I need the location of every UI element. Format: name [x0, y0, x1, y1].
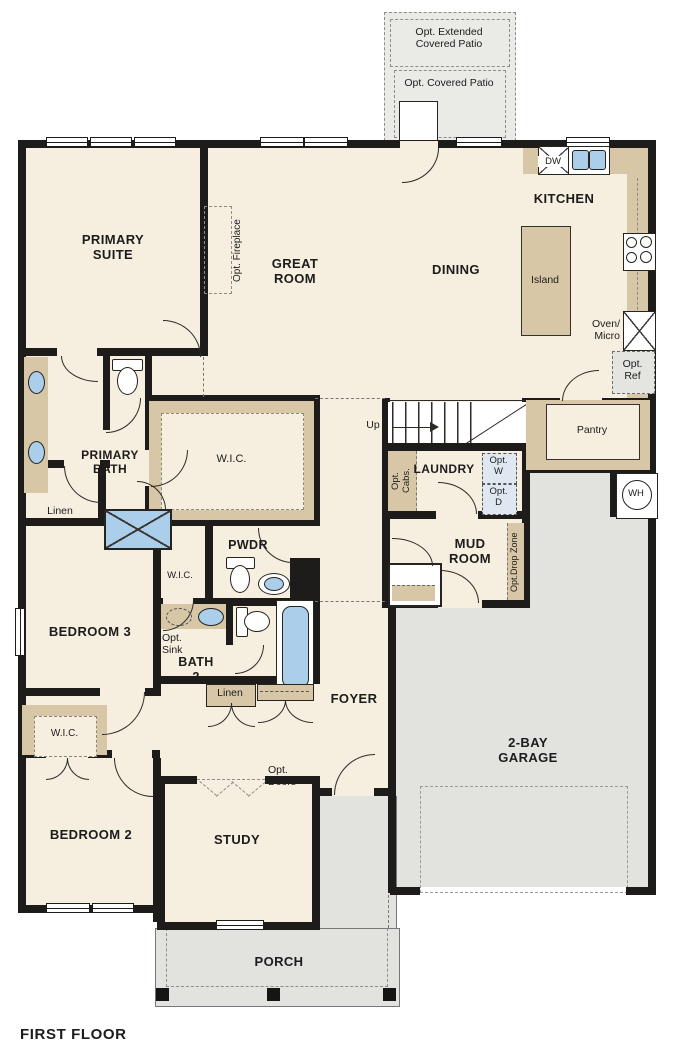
window — [46, 137, 88, 147]
drop-zone-label: Opt.Drop Zone — [509, 524, 520, 600]
porch-label: PORCH — [246, 954, 312, 969]
up-label: Up — [362, 419, 384, 431]
window — [90, 137, 132, 147]
dashed-wall-line — [203, 357, 204, 397]
vanity-sink — [28, 371, 45, 394]
wall — [18, 140, 26, 913]
wic-small-label: W.I.C. — [155, 570, 205, 581]
door-opening — [57, 348, 97, 356]
window — [134, 137, 176, 147]
opt-fireplace-box — [204, 206, 232, 294]
oven-micro — [623, 311, 656, 351]
great-room-label: GREAT ROOM — [255, 256, 335, 287]
window — [15, 608, 25, 656]
kitchen-label: KITCHEN — [524, 191, 604, 206]
toilet-bowl — [230, 565, 250, 593]
page-title: FIRST FLOOR — [20, 1026, 180, 1044]
wall — [382, 443, 530, 451]
patio-landing — [399, 101, 438, 144]
tub — [282, 606, 309, 688]
dining-label: DINING — [416, 262, 496, 277]
bath2-label: BATH 2 — [168, 655, 224, 685]
burner — [640, 236, 652, 248]
wall — [312, 780, 320, 930]
study-floor — [157, 780, 320, 930]
opt-doors-dash — [197, 779, 265, 780]
wall — [153, 758, 161, 922]
foyer-label: FOYER — [322, 691, 386, 706]
primary-suite-label: PRIMARY SUITE — [63, 232, 163, 263]
wall — [226, 600, 233, 645]
mud-room-label: MUD ROOM — [430, 536, 510, 567]
wall — [388, 606, 396, 893]
opt-ref-label: Opt. Ref — [612, 358, 653, 383]
dashed-wall-line — [315, 601, 385, 602]
floor-plan: Opt. Extended Covered Patio Opt. Covered… — [0, 0, 673, 1055]
up-arrow-head — [430, 422, 439, 432]
wic2-label: W.I.C. — [34, 728, 95, 740]
window — [304, 137, 348, 147]
window — [216, 920, 264, 930]
extended-patio-label: Opt. Extended Covered Patio — [394, 26, 504, 51]
sink-basin — [589, 150, 606, 170]
up-arrow — [392, 427, 430, 428]
burner — [626, 237, 637, 248]
pedestal-sink-bowl — [264, 577, 284, 591]
coat-shelf — [257, 684, 314, 701]
mud-closet-shelf — [392, 585, 435, 601]
wall — [153, 526, 161, 690]
bedroom2-label: BEDROOM 2 — [33, 827, 149, 842]
stairs-edge-line — [388, 400, 530, 401]
garage-label: 2-BAY GARAGE — [478, 735, 578, 766]
opt-dryer-label: Opt. D — [482, 486, 515, 508]
dashed-wall-line — [315, 398, 385, 399]
island-label: Island — [521, 274, 569, 286]
vanity-sink — [28, 441, 45, 464]
oven-micro-label: Oven/ Micro — [588, 318, 620, 343]
window — [260, 137, 304, 147]
wh-label: WH — [622, 488, 650, 499]
door-opening — [112, 750, 152, 758]
study-label: STUDY — [197, 832, 277, 847]
burner — [640, 251, 652, 263]
opt-fireplace-label: Opt. Fireplace — [232, 206, 244, 296]
garage-door-dashed — [420, 786, 628, 893]
burner — [626, 252, 637, 263]
pantry-label: Pantry — [546, 424, 638, 436]
porch-post — [267, 988, 280, 1001]
door-opening — [400, 141, 438, 148]
bath2-sink — [198, 608, 224, 626]
covered-patio-label: Opt. Covered Patio — [394, 77, 504, 89]
dishwasher-label: DW — [538, 156, 568, 167]
linen2-label: Linen — [206, 687, 254, 699]
wall-chase-block — [290, 558, 320, 606]
opt-washer-label: Opt. W — [482, 455, 515, 477]
opt-doors-label: Opt. Doors — [268, 764, 308, 789]
opt-sink-label: Opt. Sink — [162, 632, 196, 657]
porch-post — [156, 988, 169, 1001]
wall — [205, 526, 213, 606]
sink-basin — [572, 150, 589, 170]
window — [456, 137, 502, 147]
shower — [104, 509, 172, 550]
porch-post — [383, 988, 396, 1001]
toilet-bowl — [244, 611, 270, 632]
toilet-bowl — [117, 367, 138, 395]
coat-shelf-dash — [260, 691, 309, 692]
laundry-label: LAUNDRY — [408, 462, 480, 476]
bedroom3-label: BEDROOM 3 — [32, 624, 148, 639]
window — [46, 903, 90, 913]
window — [92, 903, 134, 913]
porch-side-floor — [320, 796, 397, 930]
linen-label: Linen — [30, 505, 90, 517]
